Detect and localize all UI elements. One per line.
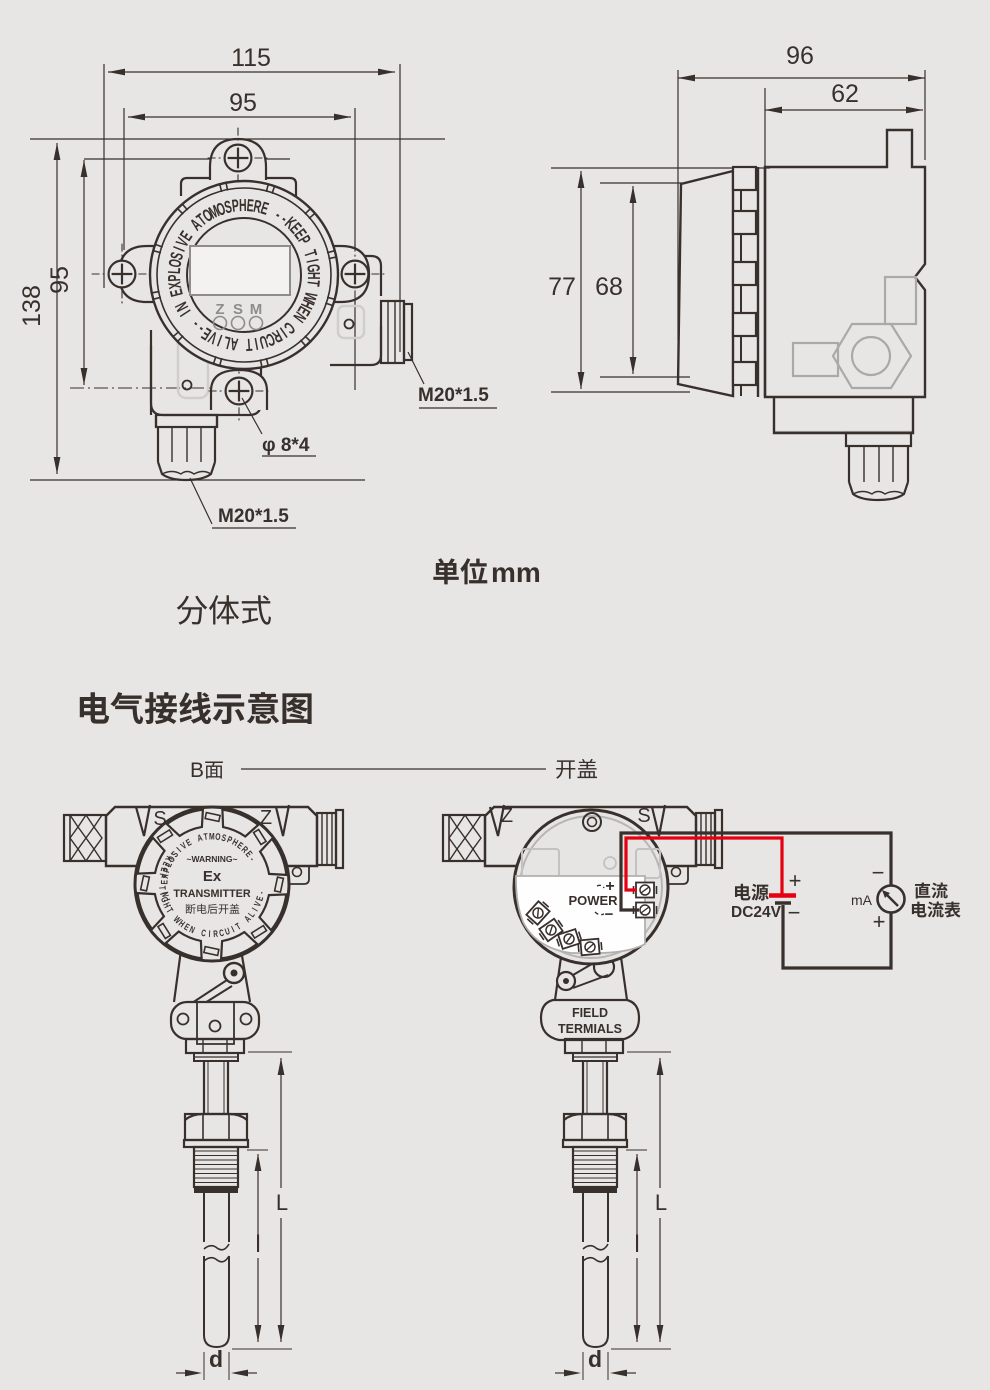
- svg-text:S: S: [233, 301, 243, 318]
- svg-text:E: E: [159, 879, 170, 884]
- svg-text:95: 95: [229, 89, 257, 117]
- svg-text:−: −: [605, 906, 614, 923]
- svg-text:−: −: [788, 900, 801, 925]
- svg-text:M: M: [250, 301, 263, 318]
- svg-text:Z: Z: [260, 807, 272, 829]
- svg-text:FIELD: FIELD: [572, 1006, 608, 1020]
- svg-text:+: +: [605, 878, 614, 895]
- svg-text:M20*1.5: M20*1.5: [218, 506, 289, 527]
- svg-text:d: d: [588, 1346, 602, 1372]
- svg-text:mA: mA: [851, 892, 873, 908]
- svg-text:TRANSMITTER: TRANSMITTER: [173, 888, 251, 900]
- svg-text:H: H: [303, 272, 322, 280]
- svg-text:B: B: [190, 759, 204, 782]
- svg-text:M20*1.5: M20*1.5: [418, 385, 489, 406]
- svg-text:L: L: [276, 1190, 288, 1215]
- svg-text:−: −: [872, 860, 885, 885]
- svg-text:68: 68: [595, 273, 623, 301]
- svg-text:P: P: [165, 274, 185, 282]
- svg-text:S: S: [637, 805, 650, 827]
- svg-text:TERMIALS: TERMIALS: [558, 1022, 622, 1036]
- svg-text:T: T: [157, 886, 168, 891]
- svg-text:Z: Z: [501, 805, 513, 827]
- svg-text:77: 77: [548, 273, 576, 301]
- svg-text:L: L: [655, 1190, 667, 1215]
- svg-text:l: l: [634, 1231, 639, 1258]
- svg-text:138: 138: [18, 285, 46, 327]
- svg-text:mm: mm: [491, 557, 541, 588]
- svg-text:+: +: [873, 909, 886, 934]
- svg-text:96: 96: [786, 42, 814, 70]
- svg-text:l: l: [255, 1231, 260, 1258]
- svg-text:115: 115: [231, 44, 271, 72]
- svg-text:Ex: Ex: [203, 868, 222, 885]
- svg-text:d: d: [209, 1346, 223, 1372]
- svg-text:62: 62: [831, 80, 859, 108]
- svg-text:R: R: [213, 929, 219, 940]
- svg-text:Z: Z: [215, 301, 224, 318]
- svg-text:95: 95: [46, 266, 74, 294]
- svg-text:+: +: [789, 868, 802, 893]
- svg-text:S: S: [153, 808, 166, 830]
- svg-text:DC24V: DC24V: [731, 904, 782, 921]
- svg-text:M: M: [209, 831, 215, 841]
- svg-text:~WARNING~: ~WARNING~: [186, 854, 237, 864]
- svg-text:φ 8*4: φ 8*4: [262, 435, 310, 456]
